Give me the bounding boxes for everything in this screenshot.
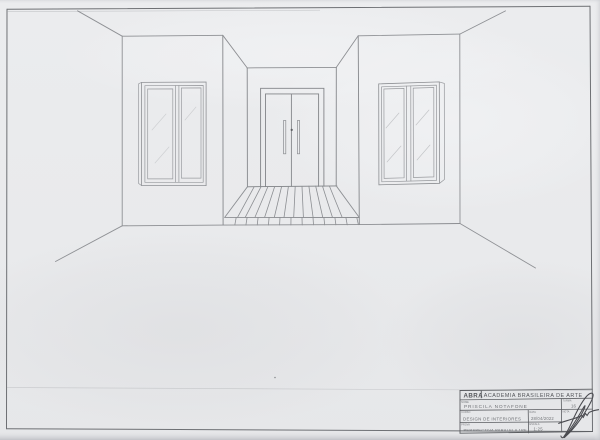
svg-text:PRISCILA NOTAFONE: PRISCILA NOTAFONE	[464, 404, 528, 410]
svg-text:28/04/2022: 28/04/2022	[531, 416, 554, 421]
svg-text:NOTA: NOTA	[563, 410, 570, 413]
svg-text:NOME: NOME	[461, 401, 469, 404]
svg-text:TURMA: TURMA	[563, 399, 572, 402]
svg-text:16: 16	[571, 404, 576, 409]
svg-text:ACADEMIA BRASILEIRA DE ARTE: ACADEMIA BRASILEIRA DE ARTE	[484, 393, 583, 399]
svg-text:DESIGN DE INTERIORES: DESIGN DE INTERIORES	[463, 416, 521, 421]
svg-text:PERSPECTIVA PARALELA 1PF: PERSPECTIVA PARALELA 1PF	[464, 427, 528, 432]
svg-text:DATA: DATA	[530, 411, 537, 414]
svg-text:ABRA: ABRA	[464, 392, 484, 399]
svg-text:CURSO: CURSO	[461, 411, 470, 414]
svg-text:PROVA: PROVA	[461, 423, 470, 426]
svg-text:1:25: 1:25	[534, 426, 544, 431]
